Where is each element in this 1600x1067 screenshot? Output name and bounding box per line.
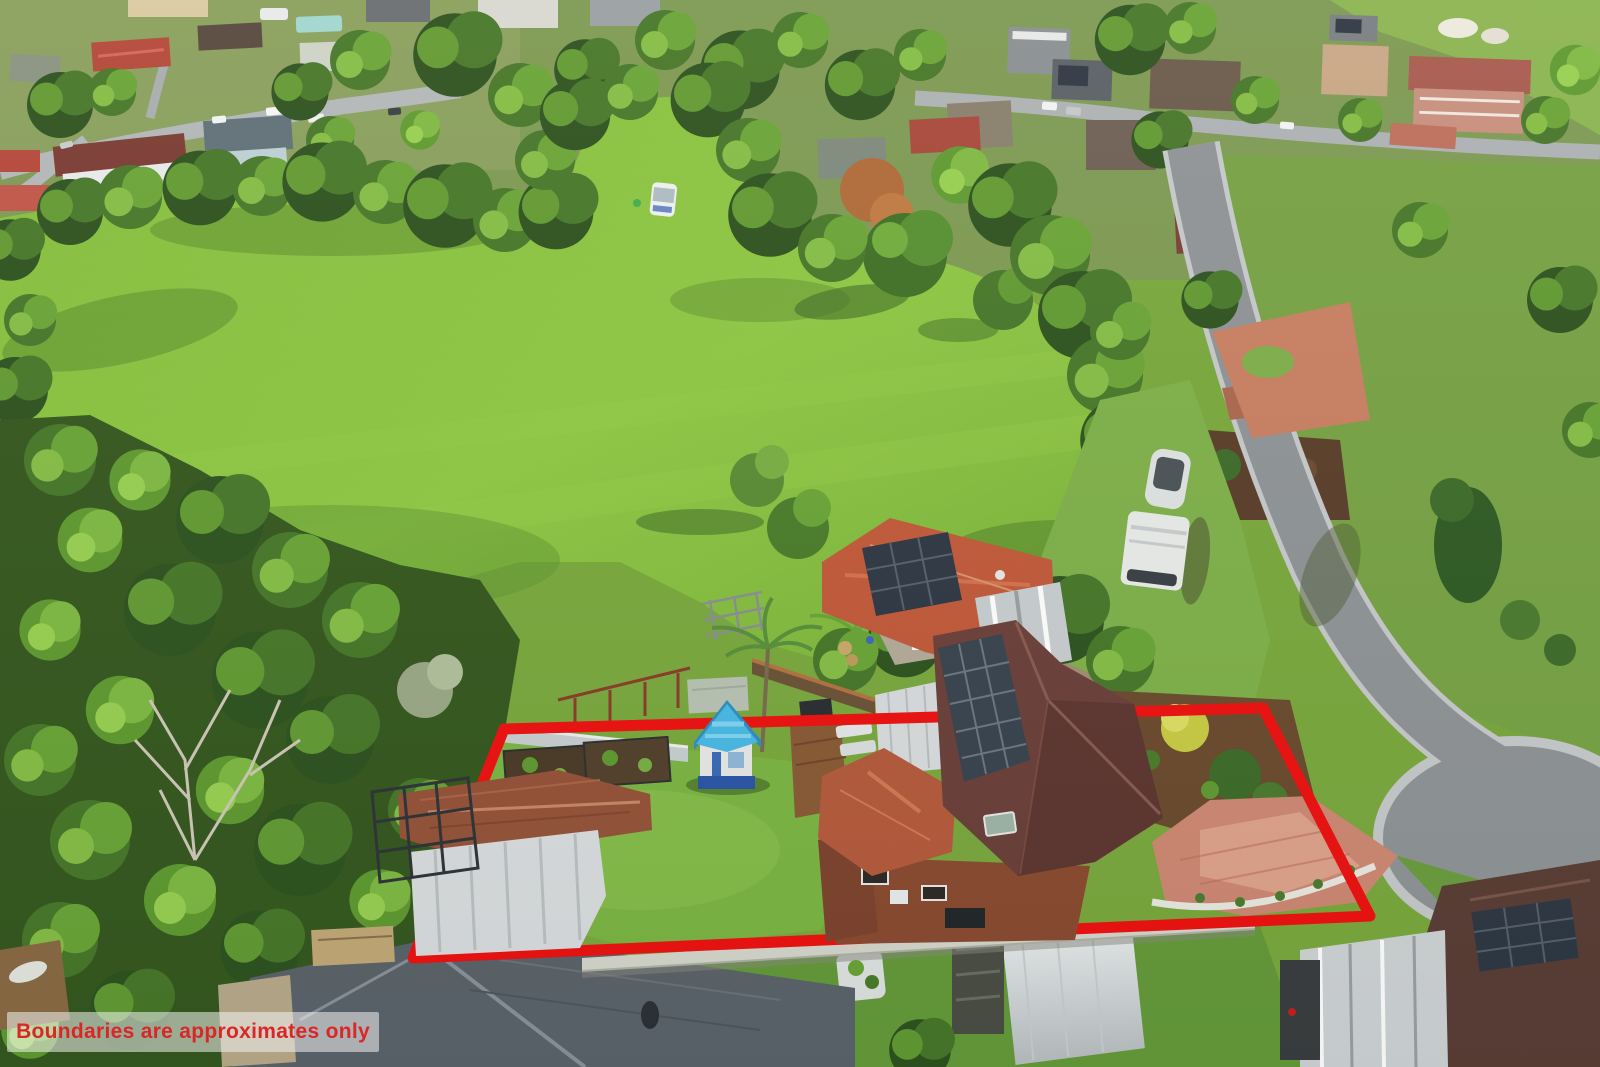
boundary-disclaimer: Boundaries are approximates only bbox=[7, 1012, 379, 1052]
cubby-house bbox=[686, 700, 770, 795]
parked-van bbox=[649, 182, 677, 217]
aerial-listing-photo: Boundaries are approximates only bbox=[0, 0, 1600, 1067]
aerial-scene bbox=[0, 0, 1600, 1067]
mansion bbox=[1407, 56, 1532, 134]
